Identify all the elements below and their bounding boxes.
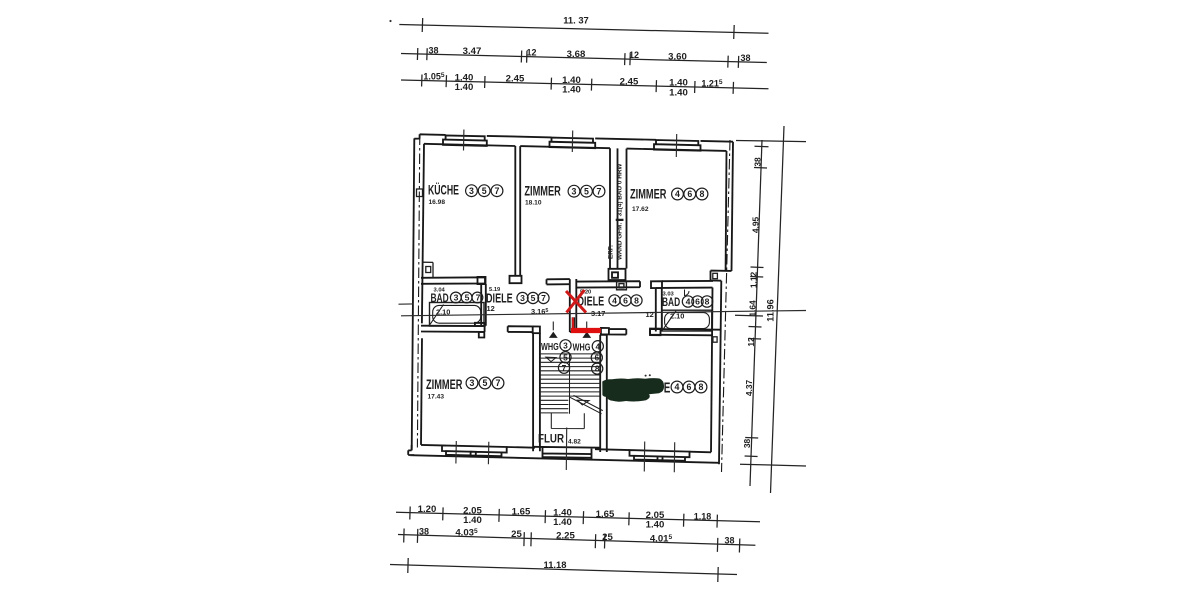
svg-text:3: 3 bbox=[469, 186, 474, 196]
svg-text:1.40: 1.40 bbox=[562, 85, 581, 96]
svg-text:8: 8 bbox=[699, 382, 704, 392]
svg-text:3: 3 bbox=[454, 293, 459, 303]
svg-text:5: 5 bbox=[563, 352, 568, 362]
svg-text:7: 7 bbox=[495, 186, 500, 196]
svg-text:ZIMMER: ZIMMER bbox=[426, 377, 463, 392]
svg-text:ZIMMER: ZIMMER bbox=[524, 184, 561, 199]
svg-text:3.47: 3.47 bbox=[463, 46, 482, 57]
svg-text:1.20: 1.20 bbox=[418, 504, 437, 515]
svg-text:ERF.: ERF. bbox=[608, 245, 615, 259]
svg-text:5: 5 bbox=[482, 186, 487, 196]
svg-text:7: 7 bbox=[597, 186, 602, 196]
svg-text:2.10: 2.10 bbox=[670, 312, 684, 321]
svg-text:12: 12 bbox=[487, 304, 495, 313]
svg-text:3.68: 3.68 bbox=[567, 49, 586, 60]
svg-text:BAD: BAD bbox=[662, 297, 681, 310]
svg-text:16.98: 16.98 bbox=[429, 199, 446, 206]
svg-text:1.64: 1.64 bbox=[748, 300, 758, 317]
svg-text:KÜCHE: KÜCHE bbox=[428, 183, 459, 198]
svg-text:12: 12 bbox=[629, 50, 639, 60]
svg-text:38: 38 bbox=[428, 45, 438, 55]
svg-text:2.25: 2.25 bbox=[556, 531, 575, 542]
svg-text:1.40: 1.40 bbox=[646, 520, 665, 531]
svg-text:7: 7 bbox=[496, 378, 501, 388]
svg-text:1.40: 1.40 bbox=[455, 82, 474, 93]
svg-text:WHG: WHG bbox=[573, 341, 591, 353]
svg-text:38: 38 bbox=[419, 526, 429, 536]
svg-text:4: 4 bbox=[675, 189, 680, 199]
svg-text:12: 12 bbox=[746, 337, 756, 347]
svg-text:ZIMMER: ZIMMER bbox=[630, 187, 667, 202]
svg-text:1.65: 1.65 bbox=[512, 507, 531, 518]
svg-text:4.37: 4.37 bbox=[744, 380, 754, 397]
svg-text:5: 5 bbox=[465, 293, 470, 303]
svg-text:WHG: WHG bbox=[541, 341, 559, 353]
svg-text:8: 8 bbox=[705, 297, 710, 307]
svg-text:12: 12 bbox=[646, 310, 654, 319]
svg-text:6: 6 bbox=[687, 189, 692, 199]
svg-text:11. 37: 11. 37 bbox=[563, 15, 589, 26]
svg-text:2.10: 2.10 bbox=[436, 308, 450, 317]
svg-text:1.215: 1.215 bbox=[701, 78, 723, 88]
svg-text:3: 3 bbox=[520, 293, 525, 303]
svg-text:8: 8 bbox=[634, 296, 639, 306]
svg-text:25: 25 bbox=[511, 529, 522, 540]
svg-text:6: 6 bbox=[695, 297, 700, 307]
svg-text:38: 38 bbox=[724, 535, 734, 545]
svg-text:4: 4 bbox=[686, 297, 691, 307]
svg-text:6: 6 bbox=[623, 296, 628, 306]
svg-text:1.40: 1.40 bbox=[463, 515, 482, 526]
svg-text:3.60: 3.60 bbox=[668, 51, 687, 62]
svg-text:7: 7 bbox=[541, 293, 546, 303]
svg-text:1.40: 1.40 bbox=[669, 87, 688, 98]
svg-text:6: 6 bbox=[687, 382, 692, 392]
svg-text:FLUR: FLUR bbox=[538, 433, 564, 446]
svg-text:11.18: 11.18 bbox=[544, 559, 567, 570]
svg-text:7: 7 bbox=[562, 363, 567, 373]
svg-text:38: 38 bbox=[742, 439, 752, 449]
svg-text:5: 5 bbox=[584, 186, 589, 196]
svg-text:17.62: 17.62 bbox=[632, 206, 649, 213]
svg-text:2.45: 2.45 bbox=[506, 74, 525, 85]
svg-text:25: 25 bbox=[602, 532, 613, 543]
svg-text:4: 4 bbox=[612, 296, 617, 306]
svg-text:38: 38 bbox=[753, 157, 763, 167]
svg-text:3: 3 bbox=[563, 340, 568, 350]
svg-text:1.18: 1.18 bbox=[694, 511, 712, 521]
svg-text:12: 12 bbox=[526, 48, 536, 58]
svg-text:18.10: 18.10 bbox=[525, 200, 542, 207]
svg-text:E: E bbox=[664, 380, 671, 396]
svg-text:38: 38 bbox=[740, 53, 750, 63]
svg-text:8: 8 bbox=[595, 364, 600, 374]
svg-text:2.45: 2.45 bbox=[620, 76, 639, 87]
svg-text:6: 6 bbox=[594, 353, 599, 363]
svg-text:1.40: 1.40 bbox=[553, 517, 572, 528]
svg-text:1.055: 1.055 bbox=[423, 72, 445, 82]
svg-text:4.95: 4.95 bbox=[751, 217, 761, 234]
svg-text:3: 3 bbox=[470, 378, 475, 388]
svg-text:4: 4 bbox=[675, 382, 680, 392]
svg-text:BAD: BAD bbox=[431, 293, 450, 306]
svg-text:3.165: 3.165 bbox=[531, 307, 548, 316]
svg-text:1.65: 1.65 bbox=[596, 509, 615, 520]
svg-text:WAND GFM. ▌31(4) BAU 0 HRW: WAND GFM. ▌31(4) BAU 0 HRW bbox=[616, 163, 624, 260]
svg-text:5: 5 bbox=[531, 293, 536, 303]
svg-text:3.17: 3.17 bbox=[591, 309, 605, 318]
svg-text:4: 4 bbox=[595, 341, 600, 351]
svg-text:3: 3 bbox=[572, 186, 577, 196]
svg-text:17.43: 17.43 bbox=[428, 394, 445, 401]
svg-text:5: 5 bbox=[483, 378, 488, 388]
svg-text:4.82: 4.82 bbox=[568, 439, 581, 446]
svg-text:7: 7 bbox=[476, 293, 481, 303]
svg-text:1.12: 1.12 bbox=[749, 272, 759, 289]
svg-text:8: 8 bbox=[700, 189, 705, 199]
